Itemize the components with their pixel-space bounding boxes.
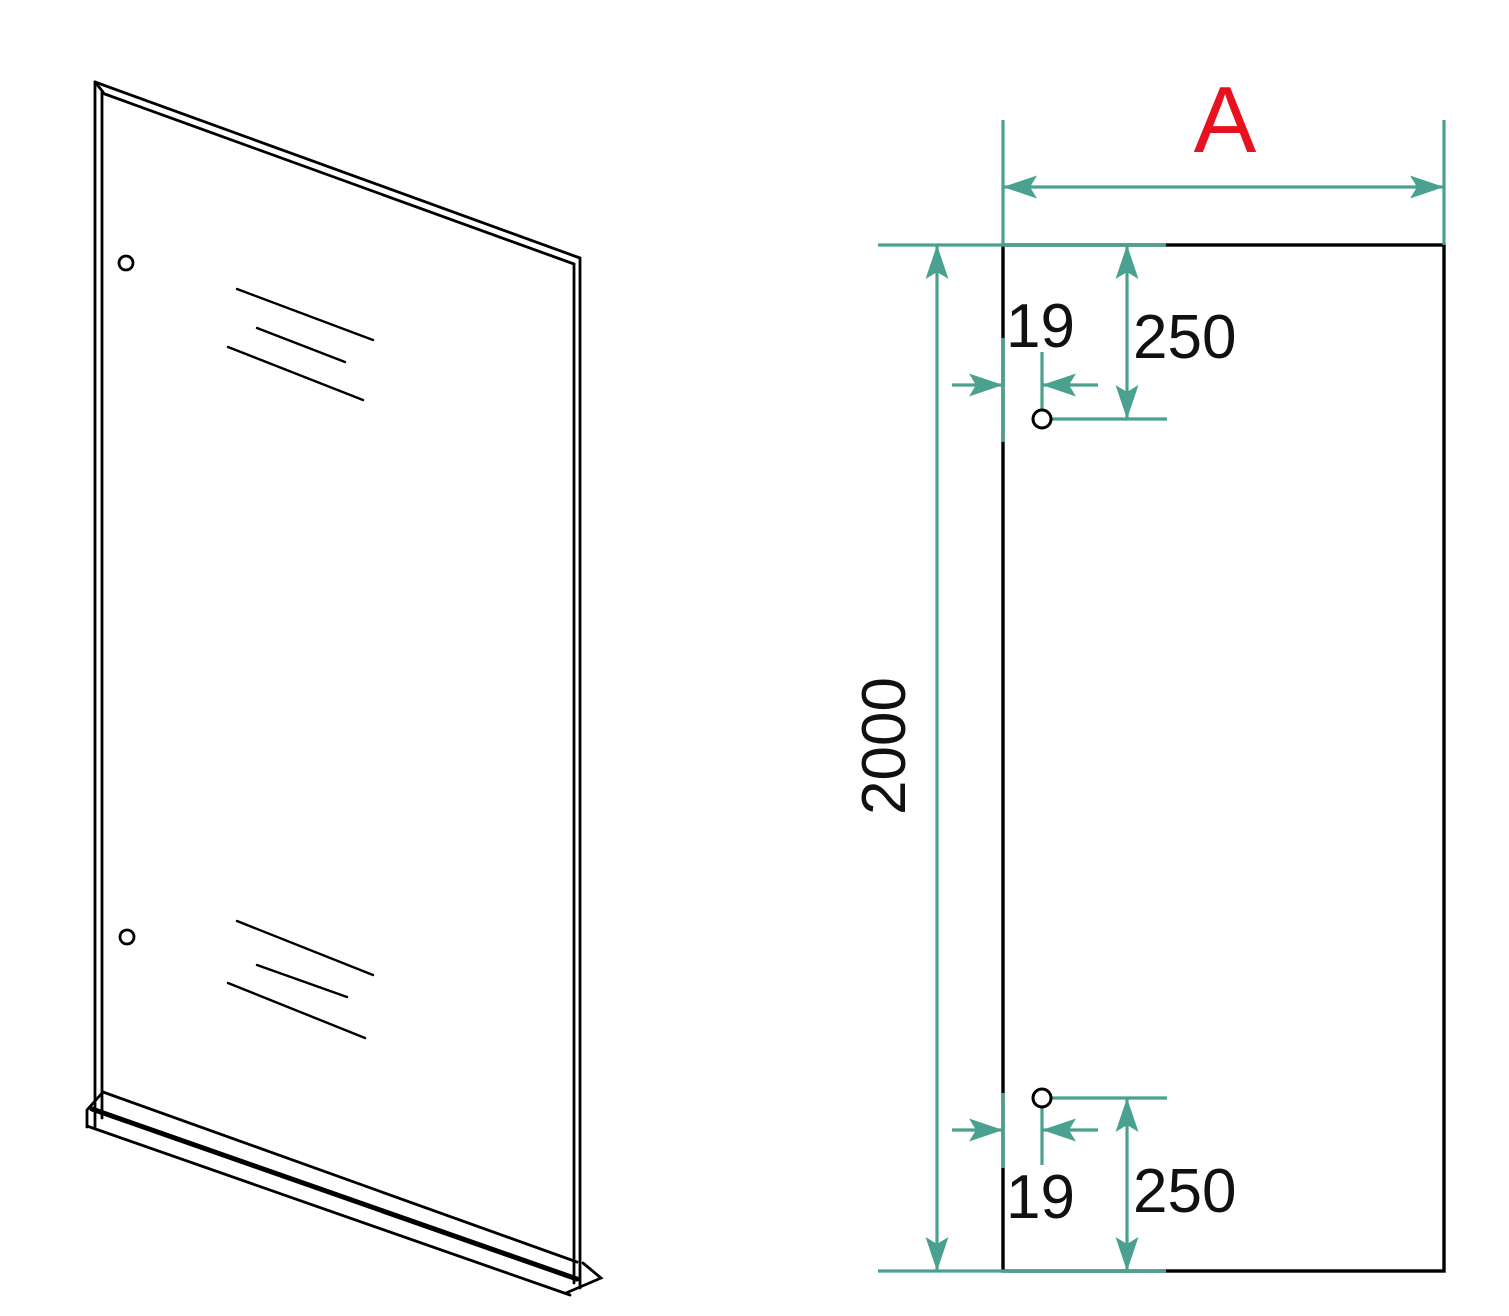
bottom-hole-offset-x-label: 19	[1006, 1163, 1075, 1232]
mounting-hole-bottom	[1033, 1089, 1051, 1107]
mounting-hole-bottom-3d	[120, 930, 134, 944]
technical-drawing-canvas: A 2000 19 250 19 250	[0, 0, 1509, 1316]
width-dimension-label: A	[1194, 67, 1257, 172]
bottom-hole-offset-y-label: 250	[1133, 1157, 1236, 1226]
drawing-background	[0, 0, 1509, 1316]
top-hole-offset-y-label: 250	[1133, 303, 1236, 372]
mounting-hole-top-3d	[119, 256, 133, 270]
top-hole-offset-x-label: 19	[1006, 292, 1075, 361]
mounting-hole-top	[1033, 410, 1051, 428]
height-dimension-label: 2000	[850, 677, 919, 815]
